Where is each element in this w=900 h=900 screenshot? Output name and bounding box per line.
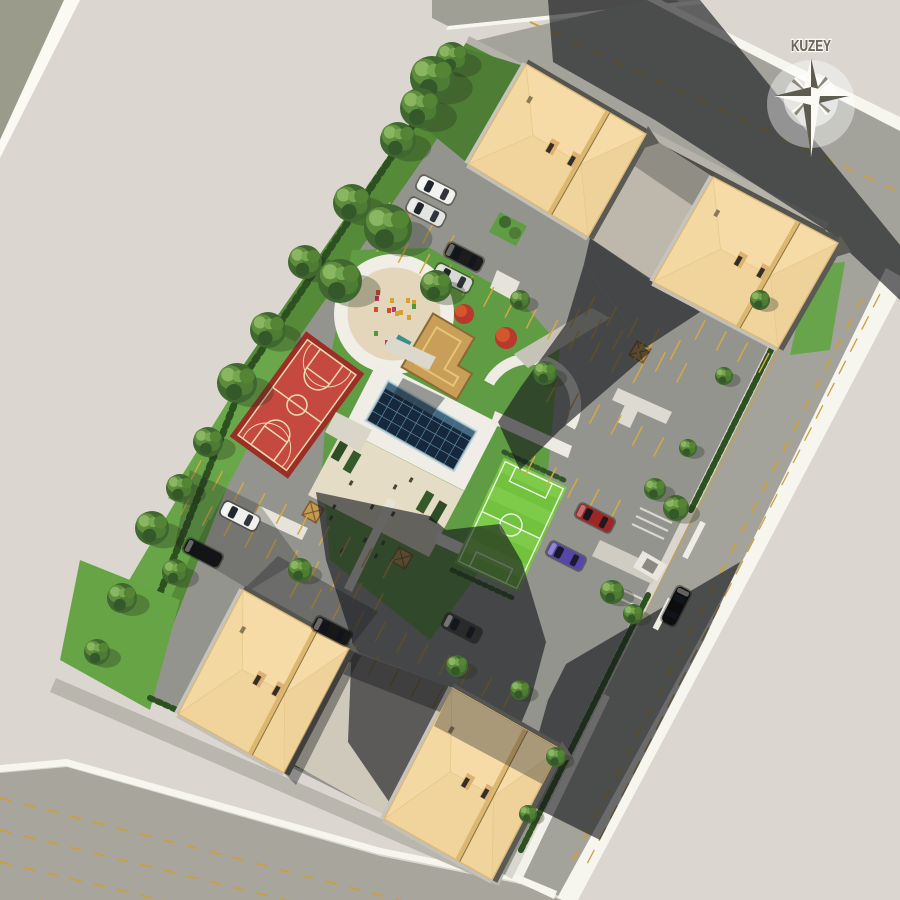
svg-text:KUZEY: KUZEY xyxy=(791,38,831,55)
